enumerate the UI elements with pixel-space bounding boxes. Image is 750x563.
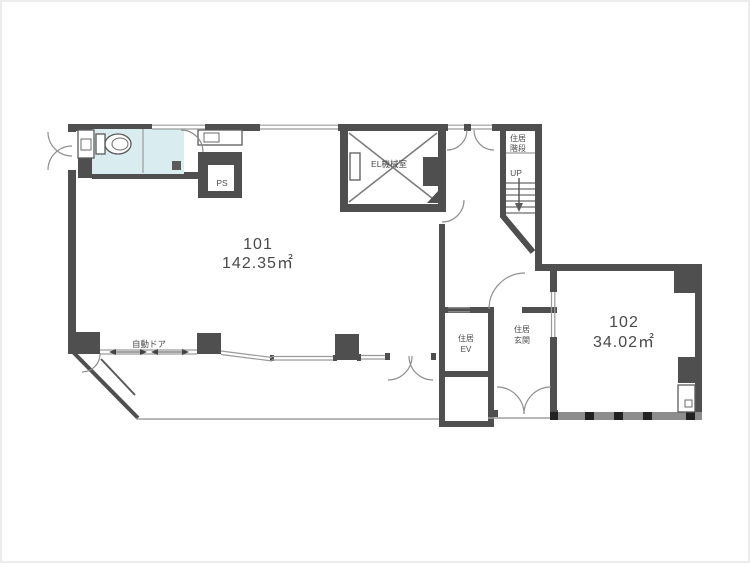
slanted-window-wall xyxy=(221,351,272,361)
stairs-label-line2: 階段 xyxy=(510,143,526,153)
entry-double-door-arc xyxy=(524,387,551,414)
stair-diagonal-wall xyxy=(502,215,533,252)
entry-double-door-arc xyxy=(497,387,524,414)
double-door-arc xyxy=(48,132,72,156)
sink-counter xyxy=(198,130,242,145)
ev-label-line1: 住居 xyxy=(458,333,474,343)
corner-pillar xyxy=(71,332,100,354)
window xyxy=(552,292,555,337)
window-end-cap xyxy=(333,355,337,361)
window xyxy=(471,125,492,129)
water-heater-box xyxy=(678,385,695,412)
entrance-label-line2: 玄関 xyxy=(514,335,530,345)
automatic-door xyxy=(100,349,197,355)
door-stub xyxy=(385,353,390,360)
left-wall-stub xyxy=(68,124,76,132)
room101-number: 101 xyxy=(243,236,273,253)
mullion xyxy=(550,412,558,420)
ev-right-wall xyxy=(488,307,494,377)
door-stub xyxy=(431,353,436,360)
window xyxy=(272,357,333,361)
room102-left-wall-upper xyxy=(550,264,557,292)
window xyxy=(152,125,205,129)
floor-plan-canvas: 101 142.35㎡ 102 34.02㎡ EL機械室 PS 住居 階段 UP… xyxy=(0,0,750,563)
alcove-floor xyxy=(445,377,488,421)
room102-top-wall xyxy=(550,264,702,271)
toilet-tank xyxy=(96,134,105,154)
corridor-wall-lower xyxy=(439,224,445,427)
water-heater-icon xyxy=(678,385,695,412)
room102-window-band xyxy=(550,412,702,420)
right-outer-wall-upper xyxy=(535,124,542,270)
alcove-right-wall xyxy=(488,377,494,427)
toilet-room-floor xyxy=(92,129,184,174)
stair-shaft-left-wall xyxy=(500,124,506,217)
toilet-bowl xyxy=(105,134,131,154)
alcove-bottom-wall xyxy=(439,421,494,427)
room102-left-wall-lower xyxy=(550,337,557,420)
room102-number: 102 xyxy=(609,314,639,331)
left-wall xyxy=(68,170,76,354)
el-inner-pillar xyxy=(423,157,438,186)
top-wall-segment xyxy=(464,124,471,131)
ev-bottom-wall xyxy=(439,371,494,377)
el-control-panel xyxy=(350,153,360,180)
el-machine-room-label: EL機械室 xyxy=(371,159,407,169)
room101-double-door-arc xyxy=(388,356,412,380)
top-wall-segment xyxy=(492,124,542,131)
stairs xyxy=(506,153,535,213)
sink-counter-icon xyxy=(198,130,242,145)
drain-mark xyxy=(172,161,181,170)
room102-corner-pillar xyxy=(674,271,695,293)
stairs-label-line1: 住居 xyxy=(510,133,526,143)
entry-door-stub-left xyxy=(490,410,498,417)
washbasin-icon xyxy=(78,130,94,158)
ev-label-line2: EV xyxy=(461,345,472,354)
window xyxy=(361,356,385,360)
mullion xyxy=(585,412,594,420)
double-door-arc xyxy=(48,146,72,170)
entrance-hall-door-arc xyxy=(489,273,525,309)
ps-label: PS xyxy=(216,178,228,188)
corridor-door-arc xyxy=(447,130,467,150)
diagonal-wall xyxy=(72,351,138,418)
floor-plan-drawing: 101 142.35㎡ 102 34.02㎡ EL機械室 PS 住居 階段 UP… xyxy=(2,2,748,561)
room102-right-wall xyxy=(695,264,702,420)
entrance-label-line1: 住居 xyxy=(514,324,530,334)
window xyxy=(260,125,338,129)
automatic-door-label: 自動ドア xyxy=(132,339,166,349)
pillar xyxy=(335,334,359,360)
up-label: UP xyxy=(510,168,522,178)
room102-area: 34.02㎡ xyxy=(593,333,655,351)
window xyxy=(448,125,464,129)
toilet-icon xyxy=(96,134,131,154)
mullion xyxy=(643,412,652,420)
window-end-cap xyxy=(357,354,361,361)
room101-double-door-arc xyxy=(409,356,433,380)
pillar xyxy=(197,333,221,354)
corridor-door-arc xyxy=(474,130,494,150)
diagonal-inner-line xyxy=(101,359,135,395)
room102-side-pillar xyxy=(678,357,695,383)
corridor-wall-upper xyxy=(439,124,445,200)
room101-area: 142.35㎡ xyxy=(222,254,294,272)
mullion xyxy=(614,412,623,420)
mullion xyxy=(686,412,695,420)
